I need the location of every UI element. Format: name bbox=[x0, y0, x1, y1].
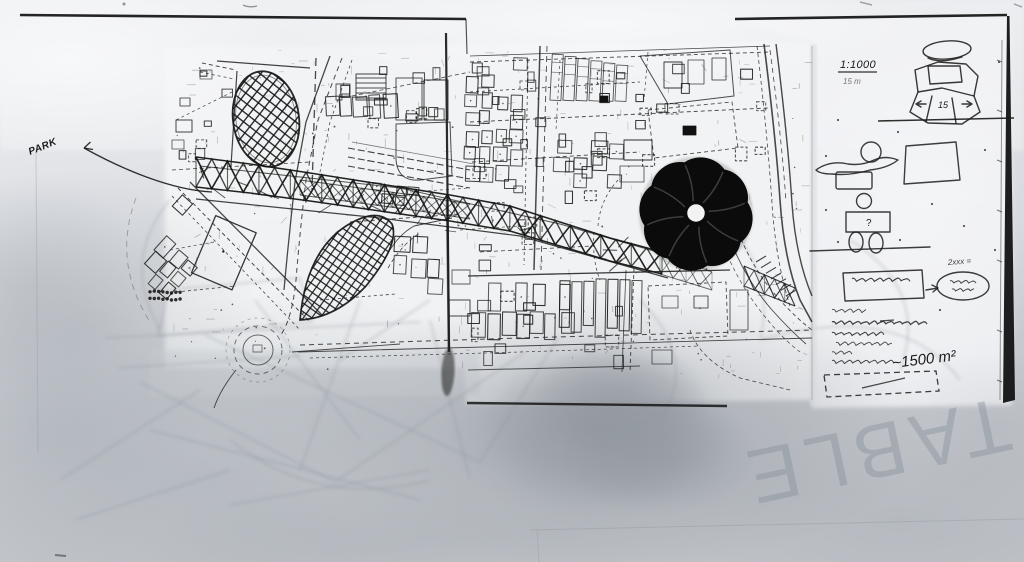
svg-text:1:1000: 1:1000 bbox=[840, 59, 877, 71]
svg-text:15 m: 15 m bbox=[843, 77, 861, 86]
svg-text:?: ? bbox=[866, 218, 872, 229]
svg-text:2xxx =: 2xxx = bbox=[947, 256, 972, 267]
svg-text:15: 15 bbox=[938, 100, 949, 110]
